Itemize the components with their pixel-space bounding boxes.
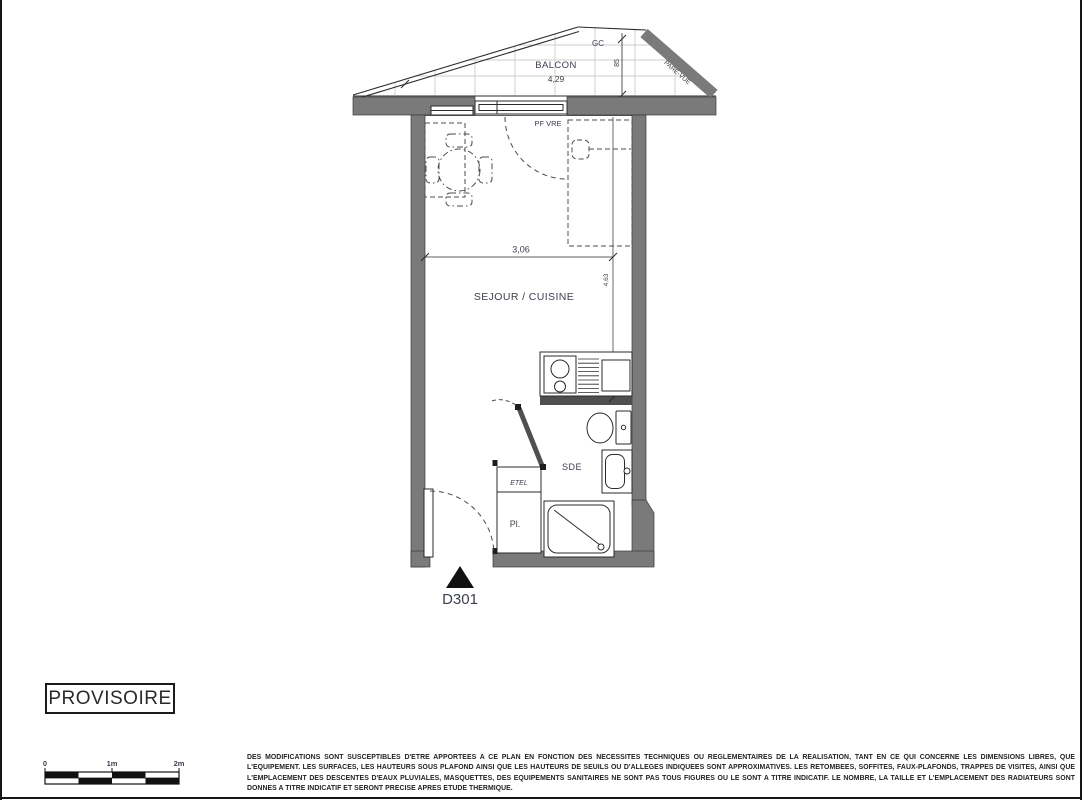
balcony: 85 BALCON 4,29 GC PARE-VUE: [350, 20, 720, 99]
living-room-label: SEJOUR / CUISINE: [474, 291, 574, 303]
provisional-stamp: PROVISOIRE: [45, 683, 175, 714]
scale-bar: 0 1m 2m: [43, 759, 185, 784]
scale-1m-label: 1m: [107, 759, 118, 768]
wall-left: [411, 115, 425, 567]
entry-door-leaf: [424, 489, 433, 557]
window-label: PF VRE: [534, 119, 561, 128]
chair-icon: [426, 157, 439, 183]
entry-door-swing: [430, 491, 494, 555]
wall-right: [632, 115, 646, 505]
entry-marker-icon: [446, 566, 474, 588]
partition-sde-top: [540, 396, 632, 405]
closet-label: Pl.: [510, 519, 521, 529]
chair-icon: [479, 157, 492, 183]
shower-room-label: SDE: [562, 462, 582, 472]
door-jamb: [493, 460, 498, 466]
gc-label: GC: [592, 39, 604, 48]
unit-label: D301: [442, 591, 478, 608]
kitchen-counter: [540, 352, 632, 396]
elec-label: ETEL: [510, 480, 528, 487]
chair-icon: [446, 134, 472, 147]
shower-icon: [544, 501, 614, 557]
partitions: [540, 396, 632, 405]
disclaimer-text: DES MODIFICATIONS SONT SUSCEPTIBLES D'ET…: [247, 753, 1075, 795]
dining-set-icon: [426, 134, 492, 206]
sde-door: [492, 400, 546, 470]
sheet-border-left: [0, 0, 2, 800]
sheet-border-bottom: [0, 797, 1082, 799]
balcony-depth-text: 85: [614, 59, 621, 67]
floor-plan-drawing: 85 BALCON 4,29 GC PARE-VUE PF VRE: [0, 0, 1082, 800]
bed-icon: [568, 120, 632, 246]
pillow-icon: [572, 140, 589, 159]
floor-plan-sheet: { "plan": { "balcony": { "label": "BALCO…: [0, 0, 1082, 800]
wall-top-right: [567, 97, 716, 115]
balcony-length-text: 4,29: [548, 74, 565, 84]
scale-0-label: 0: [43, 759, 47, 768]
living-width-dimension: 3,06: [421, 245, 617, 262]
washbasin-icon: [602, 450, 632, 493]
provisional-stamp-text: PROVISOIRE: [48, 688, 171, 710]
balcony-label: BALCON: [535, 60, 576, 71]
pare-vue-wall: [644, 33, 714, 94]
living-depth-text: 4,63: [603, 273, 610, 286]
chair-icon: [446, 193, 472, 206]
toilet-icon: [587, 411, 631, 444]
window-frame: [475, 101, 567, 114]
living-width-text: 3,06: [512, 245, 530, 255]
scale-2m-label: 2m: [174, 759, 185, 768]
balcony-depth-dimension: 85: [614, 33, 626, 99]
sink-icon: [602, 360, 630, 391]
entry-door: [424, 489, 494, 557]
table-icon: [438, 149, 480, 191]
